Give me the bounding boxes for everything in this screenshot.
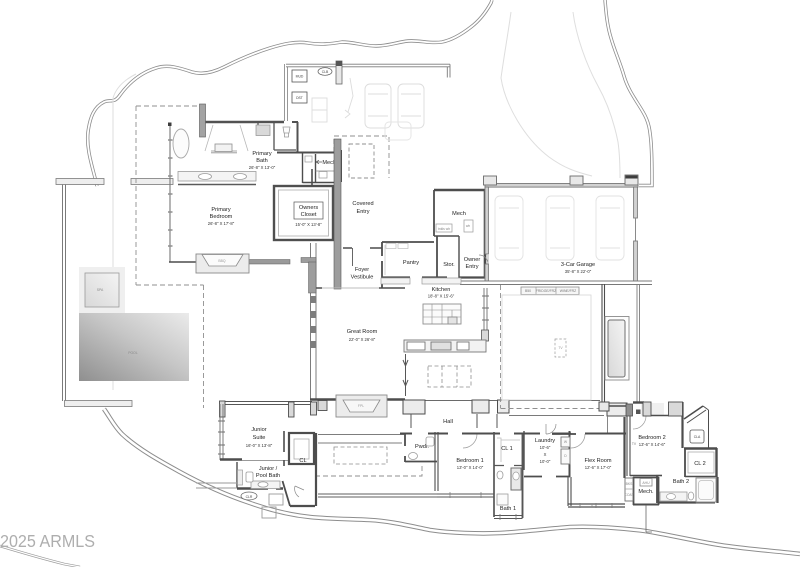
svg-text:Bath: Bath <box>256 158 268 164</box>
svg-text:Stor.: Stor. <box>443 262 455 268</box>
svg-text:Primary: Primary <box>252 151 271 157</box>
svg-text:X: X <box>544 452 547 457</box>
svg-text:22'-0" X 26'-8": 22'-0" X 26'-8" <box>349 337 376 342</box>
svg-text:CL 2: CL 2 <box>694 461 706 467</box>
svg-text:Entry: Entry <box>356 209 369 215</box>
svg-text:Mech.: Mech. <box>638 489 654 495</box>
svg-text:Foyer: Foyer <box>355 267 369 273</box>
svg-text:Bedroom 2: Bedroom 2 <box>638 435 665 441</box>
svg-text:Bath 2: Bath 2 <box>673 479 689 485</box>
svg-text:CLA: CLA <box>694 435 701 439</box>
svg-text:BBQ: BBQ <box>218 259 226 263</box>
svg-text:Flex Room: Flex Room <box>584 458 611 464</box>
svg-text:10'-0": 10'-0" <box>540 459 551 464</box>
svg-text:CLB: CLB <box>322 70 329 74</box>
svg-text:10'-6": 10'-6" <box>540 445 551 450</box>
svg-text:DST: DST <box>296 96 303 100</box>
svg-text:2025 ARMLS: 2025 ARMLS <box>0 531 95 551</box>
svg-text:COAT: COAT <box>624 493 633 497</box>
svg-text:13'-0" X 14'-0": 13'-0" X 14'-0" <box>457 465 484 470</box>
svg-text:Pool Bath: Pool Bath <box>256 473 280 479</box>
svg-text:TV: TV <box>632 442 637 446</box>
svg-text:Bedroom: Bedroom <box>210 214 233 220</box>
svg-text:Covered: Covered <box>352 201 373 207</box>
svg-text:18'-8" X 15'-6": 18'-8" X 15'-6" <box>428 294 455 299</box>
svg-text:CLR: CLR <box>246 495 253 499</box>
svg-text:FPL: FPL <box>358 404 364 408</box>
svg-text:12'-6" X 17'-0": 12'-6" X 17'-0" <box>585 465 612 470</box>
svg-text:wh: wh <box>466 224 470 228</box>
svg-text:AHU: AHU <box>642 481 650 485</box>
svg-text:MUD: MUD <box>296 75 304 79</box>
svg-text:Vestibule: Vestibule <box>351 275 374 281</box>
svg-text:BKS: BKS <box>626 482 634 486</box>
svg-text:FRIDGE/FRZ: FRIDGE/FRZ <box>536 289 556 293</box>
svg-text:WINE/FRZ: WINE/FRZ <box>560 289 576 293</box>
svg-text:13'-6" X 14'-6": 13'-6" X 14'-6" <box>639 442 666 447</box>
svg-text:Hall: Hall <box>443 419 453 425</box>
svg-text:26'-8" X 17'-8": 26'-8" X 17'-8" <box>208 221 235 226</box>
svg-text:Bedroom 1: Bedroom 1 <box>456 458 483 464</box>
svg-text:35'-8" X 22'-0": 35'-8" X 22'-0" <box>565 269 592 274</box>
svg-text:Great Room: Great Room <box>347 329 378 335</box>
svg-text:15'-0" X 13'-8": 15'-0" X 13'-8" <box>295 222 322 227</box>
svg-text:Owners: Owners <box>299 205 318 211</box>
svg-text:tnkls wh: tnkls wh <box>438 227 450 231</box>
svg-text:Primary: Primary <box>211 207 230 213</box>
svg-text:Owner: Owner <box>464 257 481 263</box>
svg-text:26'-8" X 13'-0": 26'-8" X 13'-0" <box>249 165 276 170</box>
svg-text:Bath 1: Bath 1 <box>500 506 516 512</box>
svg-text:Entry: Entry <box>465 264 478 270</box>
svg-text:SPA: SPA <box>97 288 104 292</box>
svg-text:Pantry: Pantry <box>403 260 419 266</box>
svg-text:Junior /: Junior / <box>259 466 278 472</box>
svg-text:CL: CL <box>299 458 306 464</box>
svg-text:Laundry: Laundry <box>535 438 555 444</box>
svg-text:TV: TV <box>558 346 563 350</box>
svg-text:Mech: Mech <box>452 211 466 217</box>
svg-text:Junior: Junior <box>251 427 266 433</box>
svg-text:POOL: POOL <box>128 351 138 355</box>
svg-text:Kitchen: Kitchen <box>432 287 451 293</box>
svg-text:Closet: Closet <box>301 212 317 218</box>
svg-text:CL 1: CL 1 <box>501 446 513 452</box>
svg-text:Suite: Suite <box>253 435 266 441</box>
svg-text:3-Car Garage: 3-Car Garage <box>561 262 595 268</box>
svg-text:B50: B50 <box>525 289 531 293</box>
svg-text:16'-0" X 13'-8": 16'-0" X 13'-8" <box>246 443 273 448</box>
